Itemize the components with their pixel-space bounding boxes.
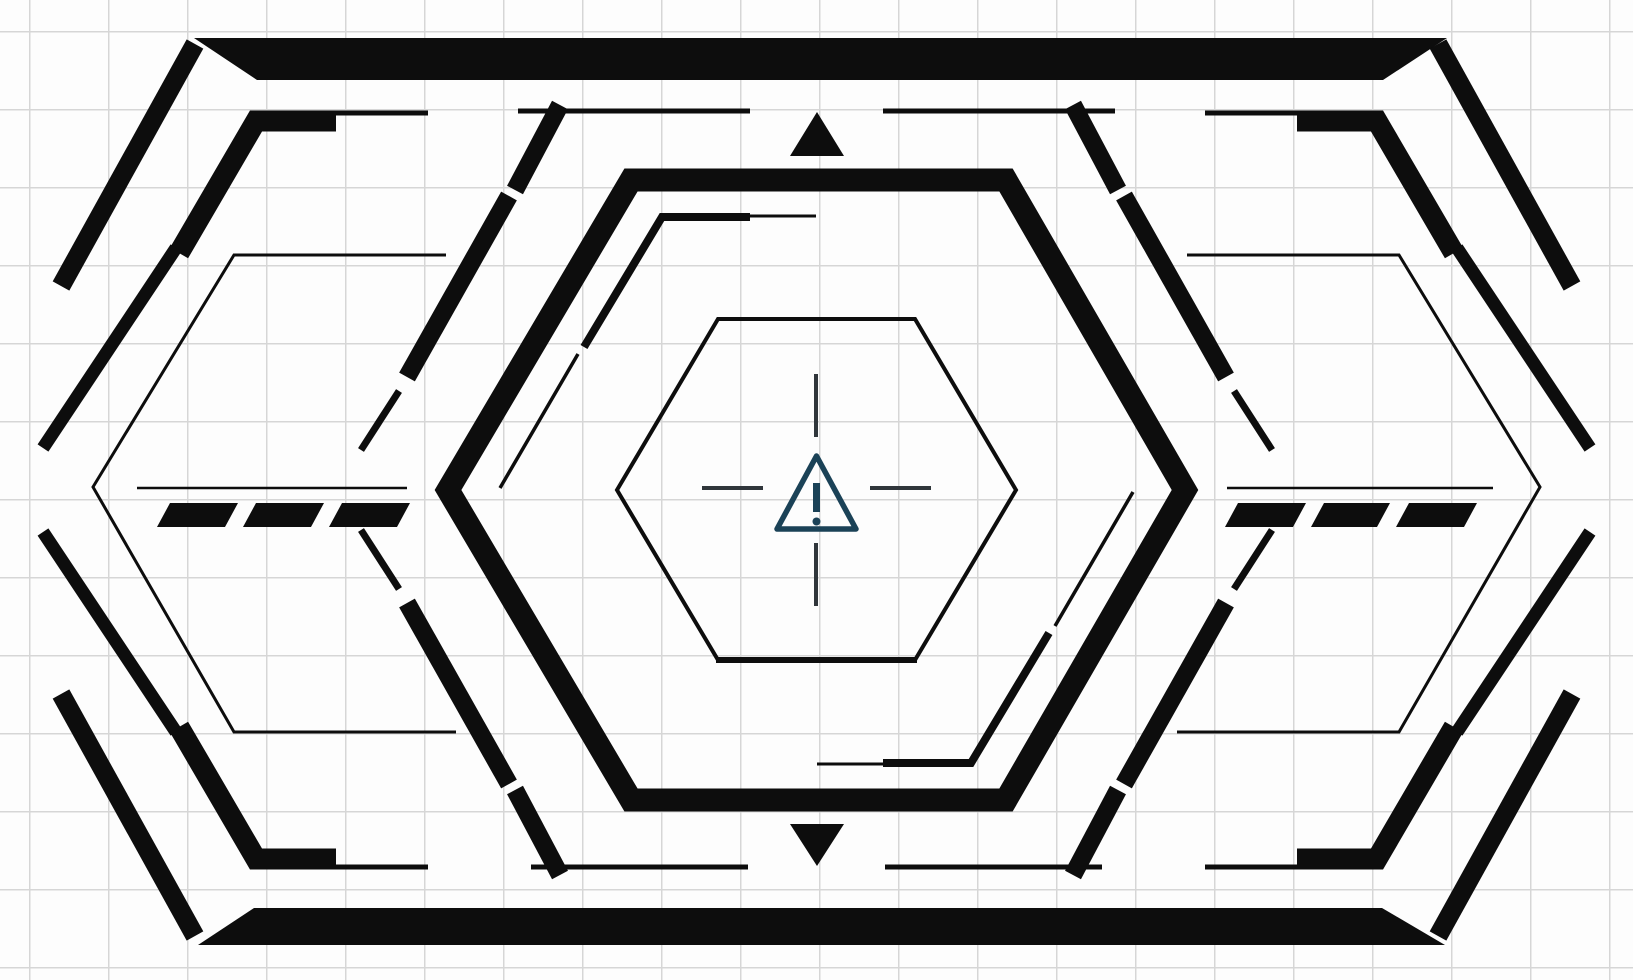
flank-br-a [1073, 790, 1118, 875]
bracket-tr-main [1297, 121, 1454, 253]
flank-tl-b [407, 196, 509, 377]
dash-left-1 [157, 503, 238, 527]
dash-right-2 [1311, 503, 1390, 527]
bracket-tl-main [179, 121, 336, 253]
thin-hexagon-left [93, 255, 456, 732]
inner-bracket-br-main [883, 633, 1049, 763]
dash-left-2 [243, 503, 324, 527]
warning-exclamation-dot [813, 518, 821, 526]
top-bar [194, 38, 1447, 80]
bracket-br-main [1297, 727, 1454, 859]
dash-right-3 [1396, 503, 1477, 527]
thin-hexagon-right [1177, 255, 1540, 732]
flank-bl-c [361, 530, 399, 589]
flank-tr-c [1234, 391, 1272, 450]
bracket-bl-main [179, 727, 336, 859]
hud-vector-layer [0, 0, 1633, 980]
bottom-bar [198, 908, 1445, 945]
flank-tl-a [515, 105, 560, 190]
flank-tr-a [1073, 105, 1118, 190]
down-arrow-icon [790, 824, 844, 866]
dash-right-1 [1225, 503, 1306, 527]
up-arrow-icon [790, 112, 844, 156]
flank-bl-b [407, 603, 509, 784]
flank-br-b [1124, 603, 1226, 784]
flank-bl-a [515, 790, 560, 875]
dash-left-3 [329, 503, 410, 527]
flank-tl-c [361, 391, 399, 450]
hud-frame-art [0, 0, 1633, 980]
flank-tr-b [1124, 196, 1226, 377]
flank-br-c [1234, 530, 1272, 589]
